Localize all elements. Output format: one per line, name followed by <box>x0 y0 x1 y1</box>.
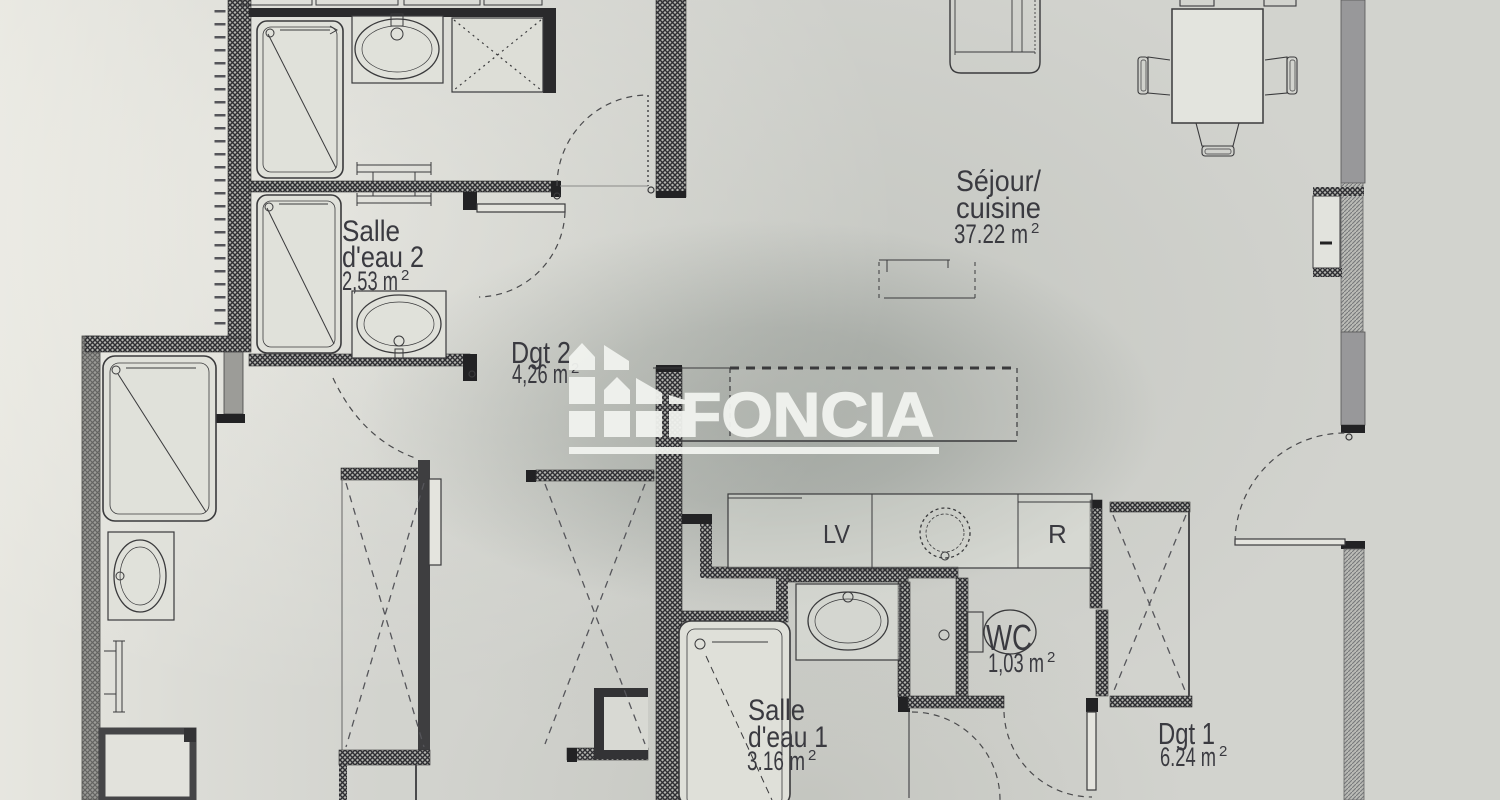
svg-text:3.16 m: 3.16 m <box>747 746 805 776</box>
svg-text:LV: LV <box>823 519 851 549</box>
svg-text:2: 2 <box>808 747 816 764</box>
svg-text:2: 2 <box>1047 649 1055 666</box>
svg-text:R: R <box>1048 519 1067 549</box>
svg-text:2: 2 <box>1219 743 1227 760</box>
svg-text:2,53 m: 2,53 m <box>342 266 398 296</box>
svg-text:4,26 m: 4,26 m <box>512 359 568 389</box>
svg-text:6.24 m: 6.24 m <box>1160 742 1216 772</box>
svg-text:2: 2 <box>401 267 409 284</box>
svg-text:37.22 m: 37.22 m <box>954 219 1028 249</box>
svg-text:2: 2 <box>1031 220 1039 237</box>
svg-text:1,03 m: 1,03 m <box>988 648 1044 678</box>
svg-text:FONCIA: FONCIA <box>681 381 934 450</box>
